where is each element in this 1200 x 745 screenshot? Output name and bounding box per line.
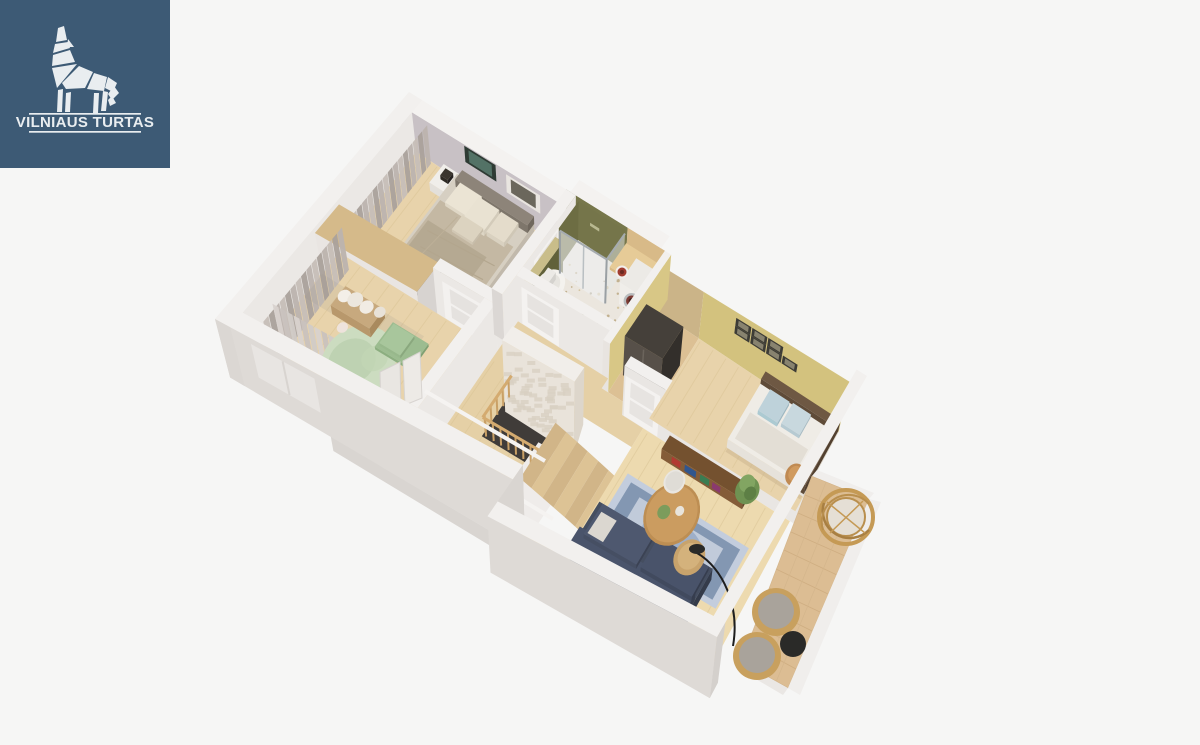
svg-text:VILNIAUS TURTAS: VILNIAUS TURTAS xyxy=(16,114,154,131)
